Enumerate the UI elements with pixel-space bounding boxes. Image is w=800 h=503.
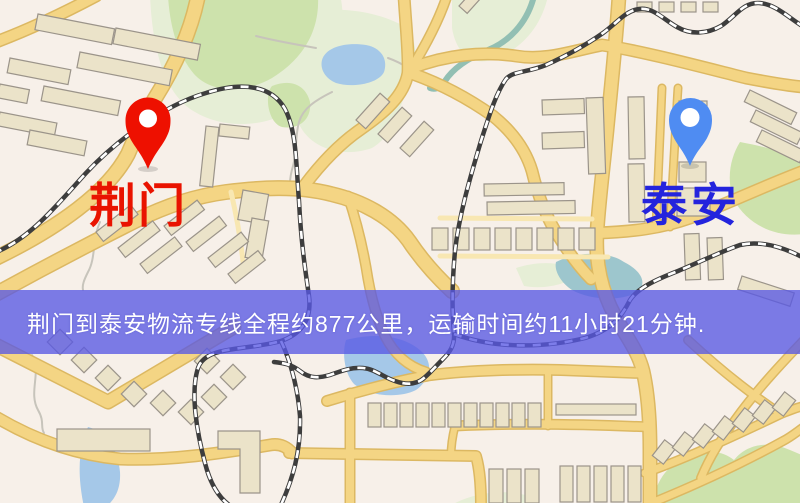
destination-label[interactable]: 泰安 bbox=[641, 179, 741, 231]
route-banner: 荆门到泰安物流专线全程约877公里，运输时间约11小时21分钟. bbox=[0, 290, 800, 354]
route-banner-text: 荆门到泰安物流专线全程约877公里，运输时间约11小时21分钟. bbox=[27, 305, 705, 339]
origin-label[interactable]: 荆门 bbox=[89, 179, 187, 232]
map-canvas[interactable]: 荆门 泰安 bbox=[0, 0, 800, 503]
map-screenshot: 荆门 泰安 荆门到泰安物流专线全程约877公里，运输时间约11小时21分钟. bbox=[0, 0, 800, 503]
